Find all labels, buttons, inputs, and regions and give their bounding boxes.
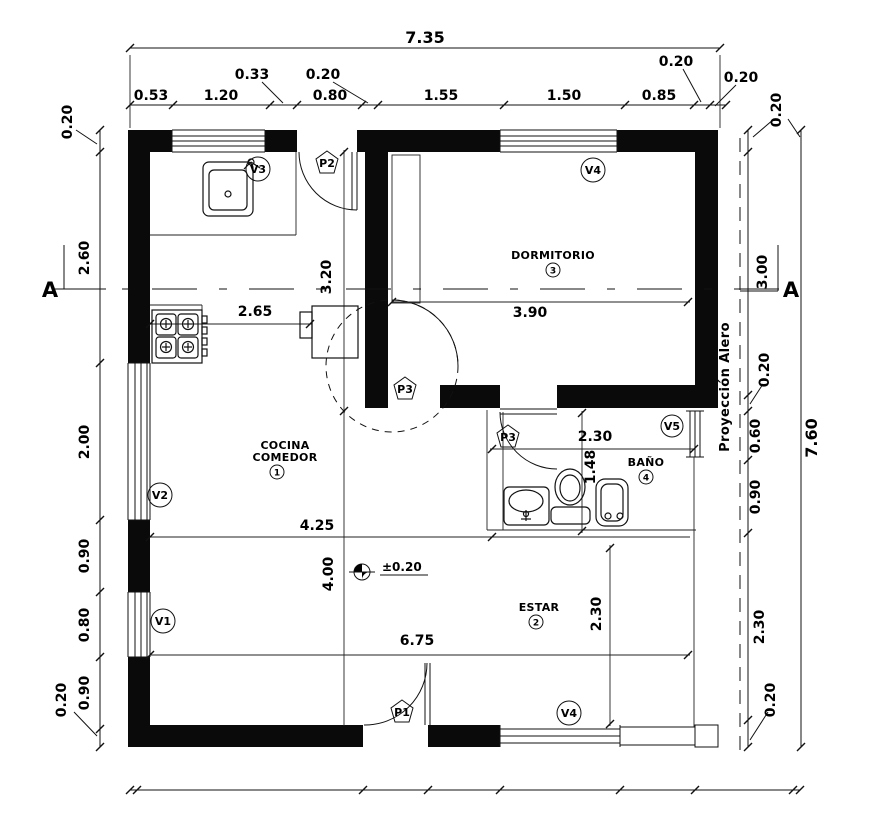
room-cocina-line2: COMEDOR — [253, 451, 318, 464]
section-letter-right: A — [783, 278, 800, 302]
lavatory — [504, 487, 549, 525]
dim-right-b: 0.20 — [757, 352, 773, 387]
dim-right-c: 0.60 — [748, 418, 764, 453]
dim-inner-390: 3.90 — [513, 305, 548, 321]
dim-left-d: 0.80 — [77, 607, 93, 642]
window-v3 — [172, 130, 265, 152]
room-estar: ESTAR — [519, 601, 560, 614]
dim-inner-230-estar: 2.30 — [589, 596, 605, 631]
dim-left-e: 0.90 — [77, 675, 93, 710]
dim-left-a: 2.60 — [77, 240, 93, 275]
dim-inner-320: 3.20 — [319, 259, 335, 294]
room-cocina-number: 1 — [274, 469, 280, 479]
dim-top-lead1: 0.33 — [235, 67, 270, 83]
dim-top-lead2: 0.20 — [306, 67, 341, 83]
room-dormitorio-number: 3 — [550, 267, 556, 277]
dim-inner-265: 2.65 — [238, 304, 273, 320]
dim-inner-675: 6.75 — [400, 633, 435, 649]
alero-label: Proyección Alero — [718, 322, 733, 452]
tag-v3: V3 — [250, 163, 266, 176]
kitchen-table — [300, 306, 358, 358]
door-p3-dormitorio — [326, 300, 458, 432]
dim-overall-top: 7.35 — [405, 28, 444, 47]
tag-p1: P1 — [394, 706, 410, 719]
window-v4-bottom — [500, 725, 695, 747]
floor-plan-drawing: 7.35 0.53 1.20 0.80 1.55 1.50 0.85 0.33 … — [0, 0, 875, 815]
dim-inner-425: 4.25 — [300, 518, 335, 534]
dim-top-seg6: 0.85 — [642, 88, 677, 104]
corner-outline — [695, 725, 718, 747]
tag-v2: V2 — [152, 489, 168, 502]
room-bano: BAÑO — [628, 456, 665, 469]
tag-v5: V5 — [664, 420, 680, 433]
dim-top-lead4: 0.20 — [724, 70, 759, 86]
dim-top-seg1: 0.53 — [134, 88, 169, 104]
room-bano-number: 4 — [643, 474, 649, 484]
dim-top-seg3: 0.80 — [313, 88, 348, 104]
window-v2 — [128, 363, 150, 520]
section-line — [55, 245, 800, 291]
section-letter-left: A — [42, 278, 59, 302]
dim-inner-400: 4.00 — [321, 556, 337, 591]
dim-top-lead3: 0.20 — [659, 54, 694, 70]
bidet — [596, 479, 628, 526]
dim-right-e: 2.30 — [752, 609, 768, 644]
dim-left-c: 0.90 — [77, 538, 93, 573]
tag-p2: P2 — [319, 157, 335, 170]
dim-right-d: 0.90 — [748, 479, 764, 514]
dim-overall-right: 7.60 — [802, 418, 821, 457]
tag-p3-a: P3 — [397, 383, 413, 396]
dim-right-top: 0.20 — [769, 92, 785, 127]
window-v1 — [128, 592, 150, 657]
dim-top-seg4: 1.55 — [424, 88, 459, 104]
tag-v4-top: V4 — [585, 164, 602, 177]
dim-top-seg5: 1.50 — [547, 88, 582, 104]
tag-v4-bottom: V4 — [561, 707, 578, 720]
room-estar-number: 2 — [533, 619, 539, 629]
walls — [128, 130, 718, 747]
dim-right-bottom: 0.20 — [763, 682, 779, 717]
tag-v1: V1 — [155, 615, 171, 628]
dim-left-b: 2.00 — [77, 424, 93, 459]
window-v4-top — [500, 130, 617, 152]
level-label: ±0.20 — [382, 560, 422, 574]
dim-inner-230-bath: 2.30 — [578, 429, 613, 445]
dim-inner-148: 1.48 — [583, 450, 599, 485]
closet — [392, 155, 420, 303]
stove — [152, 310, 207, 363]
window-v5 — [686, 411, 704, 457]
dim-top-seg2: 1.20 — [204, 88, 239, 104]
floor-plan-canvas: 7.35 0.53 1.20 0.80 1.55 1.50 0.85 0.33 … — [0, 0, 875, 815]
tag-p3-b: P3 — [500, 431, 516, 444]
dim-left-top: 0.20 — [60, 104, 76, 139]
room-dormitorio: DORMITORIO — [511, 249, 595, 262]
dim-left-bottom: 0.20 — [54, 682, 70, 717]
dim-right-a: 3.00 — [755, 254, 771, 289]
